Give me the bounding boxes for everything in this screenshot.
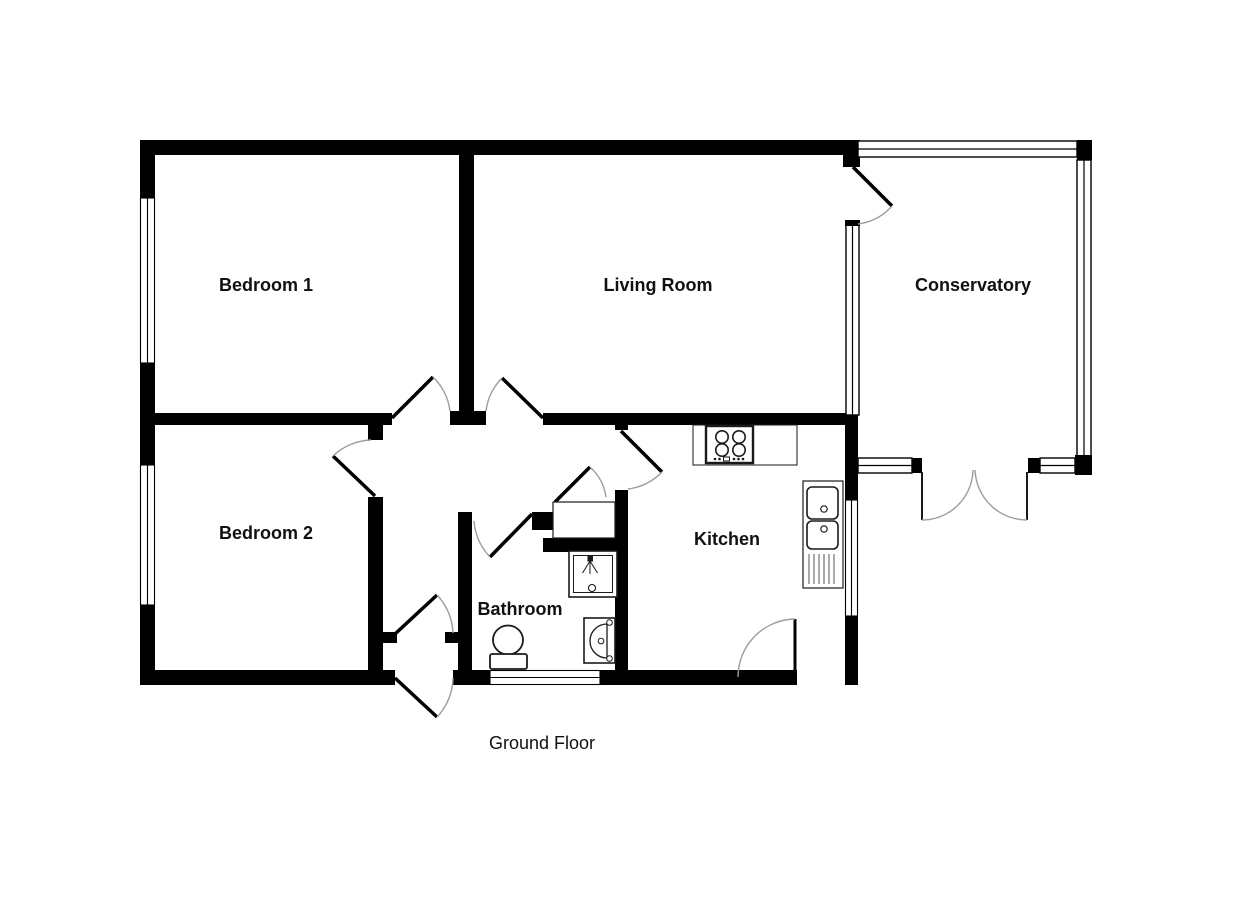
conservatory-label: Conservatory <box>915 275 1031 295</box>
airing-cupboard-door <box>555 467 606 502</box>
front-door <box>395 678 453 717</box>
hall-vestibule-door <box>395 595 453 634</box>
floor-title: Ground Floor <box>489 733 595 753</box>
wall-kitchen-right-lower <box>845 616 858 685</box>
bedroom-1-door <box>392 377 450 418</box>
doors <box>333 167 1027 717</box>
conservatory-glass-left-cap <box>845 220 860 226</box>
wall-bedroom1-living-divider <box>459 140 474 411</box>
bedroom-2-label: Bedroom 2 <box>219 523 313 543</box>
bathroom-window <box>490 671 600 685</box>
wall-bathroom-left <box>458 512 472 670</box>
conservatory-post-bottom-right <box>1075 455 1092 475</box>
bedroom-1-label: Bedroom 1 <box>219 275 313 295</box>
wall-bedroom-divider <box>140 413 392 425</box>
vestibule-jamb-right <box>445 632 458 643</box>
wall-bedroom2-right-stub <box>368 425 383 440</box>
bathroom-door <box>474 514 532 557</box>
kitchen-back-door <box>738 619 795 677</box>
wall-bedroom2-right <box>368 497 383 670</box>
wall-kitchen-right-upper <box>845 413 858 500</box>
conservatory-glazing <box>845 140 1092 475</box>
wall-bathroom-door-jamb <box>532 512 553 530</box>
conservatory-post-top-right <box>1077 140 1092 160</box>
bedroom-2-window <box>141 465 155 605</box>
kitchen-window <box>846 500 858 616</box>
kitchen-label: Kitchen <box>694 529 760 549</box>
conservatory-french-doors <box>922 470 1027 520</box>
fixtures <box>490 425 843 669</box>
living-room-label: Living Room <box>604 275 713 295</box>
wall-bottom-seg3 <box>600 670 797 685</box>
wall-hall-stub <box>450 411 486 425</box>
wall-top <box>140 140 858 155</box>
wall-kitchen-divider-top <box>615 413 628 430</box>
bathroom-label: Bathroom <box>478 599 563 619</box>
sink-double-bowl-with-drainer <box>803 481 843 588</box>
wall-living-bottom <box>543 413 845 425</box>
wall-bottom-seg1 <box>140 670 395 685</box>
airing-cupboard <box>553 502 615 538</box>
living-room-door <box>486 378 543 418</box>
bedroom-1-window <box>141 198 155 363</box>
conservatory-post-bottom-mid <box>1028 458 1040 473</box>
wash-basin <box>584 618 615 663</box>
bedroom-2-door <box>333 440 375 496</box>
wall-bottom-seg2 <box>453 670 490 685</box>
floor-plan-svg: Bedroom 1 Bedroom 2 Living Room Conserva… <box>0 0 1233 900</box>
hob <box>693 425 797 465</box>
kitchen-door <box>621 431 662 489</box>
wall-left-seg1 <box>140 140 155 198</box>
conservatory-door <box>853 167 892 224</box>
toilet <box>490 626 527 670</box>
conservatory-post-bottom-left <box>912 458 922 473</box>
floor-plan-page: Bedroom 1 Bedroom 2 Living Room Conserva… <box>0 0 1233 900</box>
shower-tray <box>569 551 617 597</box>
